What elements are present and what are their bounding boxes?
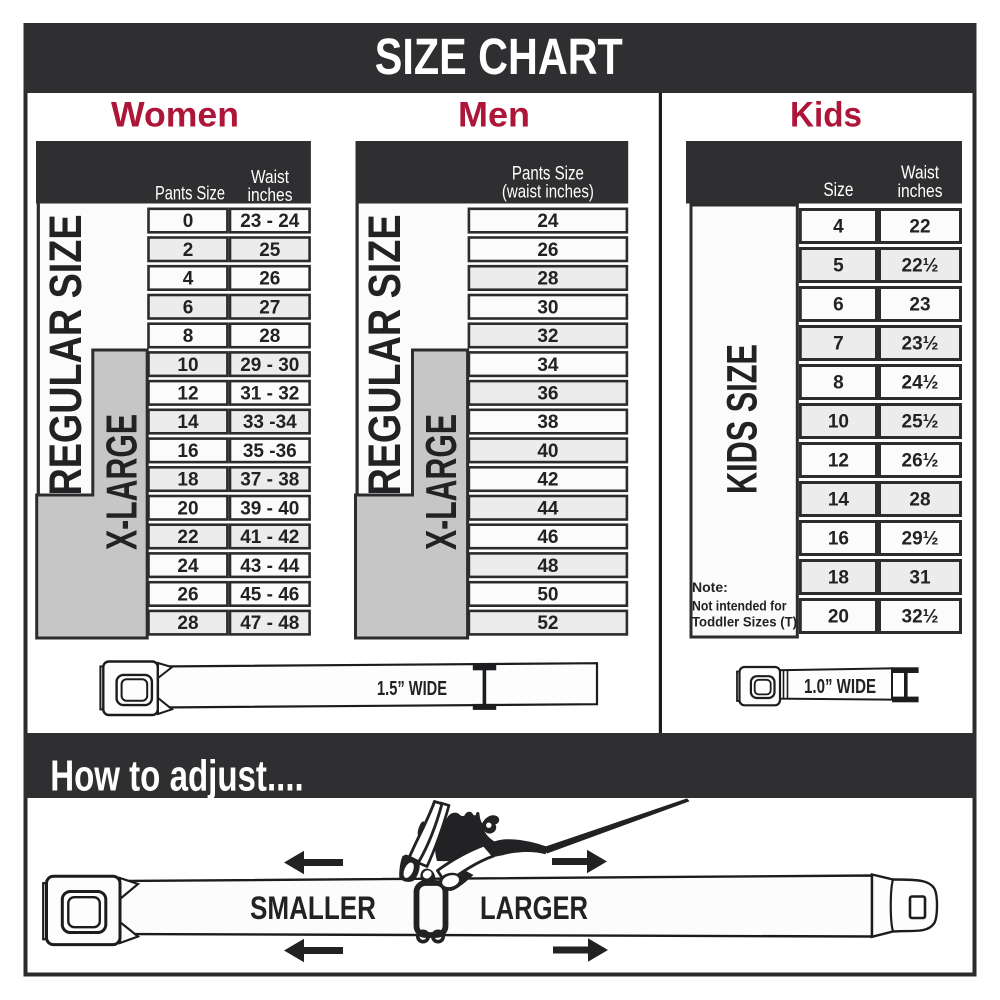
- svg-text:24½: 24½: [902, 373, 939, 394]
- svg-text:8: 8: [833, 373, 844, 394]
- svg-text:X-LARGE: X-LARGE: [417, 414, 466, 550]
- svg-text:35 -36: 35 -36: [243, 441, 297, 462]
- svg-text:10: 10: [828, 412, 849, 433]
- svg-text:48: 48: [537, 556, 558, 577]
- svg-text:26: 26: [537, 240, 558, 261]
- svg-text:KIDS SIZE: KIDS SIZE: [718, 344, 766, 494]
- svg-text:18: 18: [828, 568, 849, 589]
- svg-text:31 - 32: 31 - 32: [240, 383, 299, 404]
- svg-text:7: 7: [833, 334, 844, 355]
- svg-text:38: 38: [537, 412, 558, 433]
- svg-text:20: 20: [828, 607, 849, 628]
- svg-text:10: 10: [177, 355, 198, 376]
- svg-text:24: 24: [177, 556, 199, 577]
- svg-text:12: 12: [177, 383, 198, 404]
- svg-text:SIZE CHART: SIZE CHART: [375, 28, 623, 85]
- svg-text:45 - 46: 45 - 46: [240, 585, 299, 606]
- svg-text:14: 14: [828, 490, 850, 511]
- svg-text:LARGER: LARGER: [480, 890, 588, 926]
- svg-text:REGULAR SIZE: REGULAR SIZE: [359, 215, 410, 496]
- svg-text:32: 32: [537, 326, 558, 347]
- svg-text:23: 23: [909, 295, 930, 316]
- svg-text:33 -34: 33 -34: [243, 412, 297, 433]
- svg-text:Note:: Note:: [692, 579, 728, 595]
- svg-text:12: 12: [828, 451, 849, 472]
- svg-text:41 - 42: 41 - 42: [240, 527, 299, 548]
- svg-text:(waist inches): (waist inches): [502, 181, 594, 202]
- svg-text:44: 44: [537, 498, 559, 519]
- svg-text:REGULAR SIZE: REGULAR SIZE: [40, 215, 91, 496]
- svg-text:Men: Men: [458, 96, 530, 135]
- svg-text:16: 16: [177, 441, 198, 462]
- svg-text:43 - 44: 43 - 44: [240, 556, 300, 577]
- svg-text:22: 22: [909, 217, 930, 238]
- svg-text:0: 0: [183, 211, 194, 232]
- svg-text:26: 26: [259, 269, 280, 290]
- svg-text:1.0” WIDE: 1.0” WIDE: [804, 676, 876, 698]
- svg-text:22½: 22½: [902, 256, 939, 277]
- svg-text:28: 28: [177, 613, 198, 634]
- svg-text:28: 28: [259, 326, 280, 347]
- svg-text:34: 34: [537, 355, 559, 376]
- svg-text:27: 27: [259, 297, 280, 318]
- svg-text:26: 26: [177, 585, 198, 606]
- svg-text:Size: Size: [823, 179, 853, 201]
- svg-text:inches: inches: [898, 180, 943, 201]
- svg-text:36: 36: [537, 383, 558, 404]
- svg-text:31: 31: [909, 568, 931, 589]
- svg-text:32½: 32½: [902, 607, 939, 628]
- svg-text:Kids: Kids: [790, 96, 862, 135]
- svg-text:29½: 29½: [902, 529, 939, 550]
- svg-text:37 - 38: 37 - 38: [240, 470, 299, 491]
- svg-text:Women: Women: [111, 96, 239, 135]
- svg-text:How to adjust....: How to adjust....: [50, 751, 304, 800]
- svg-text:28: 28: [909, 490, 930, 511]
- svg-text:4: 4: [833, 217, 844, 238]
- svg-text:Toddler Sizes (T): Toddler Sizes (T): [692, 614, 797, 630]
- svg-text:20: 20: [177, 498, 198, 519]
- svg-text:SMALLER: SMALLER: [250, 890, 376, 926]
- svg-text:52: 52: [537, 613, 558, 634]
- svg-text:30: 30: [537, 297, 558, 318]
- svg-text:40: 40: [537, 441, 558, 462]
- svg-text:inches: inches: [248, 184, 293, 205]
- svg-text:1.5” WIDE: 1.5” WIDE: [377, 678, 447, 700]
- svg-text:2: 2: [183, 240, 194, 261]
- svg-text:26½: 26½: [902, 451, 939, 472]
- svg-text:Pants Size: Pants Size: [155, 183, 225, 205]
- svg-text:42: 42: [537, 470, 558, 491]
- svg-text:23½: 23½: [902, 334, 939, 355]
- svg-text:5: 5: [833, 256, 844, 277]
- svg-text:8: 8: [183, 326, 194, 347]
- svg-text:6: 6: [833, 295, 844, 316]
- svg-text:16: 16: [828, 529, 849, 550]
- svg-text:47 - 48: 47 - 48: [240, 613, 299, 634]
- svg-text:18: 18: [177, 470, 198, 491]
- svg-text:X-LARGE: X-LARGE: [98, 414, 147, 550]
- svg-text:22: 22: [177, 527, 198, 548]
- svg-text:50: 50: [537, 585, 558, 606]
- svg-text:46: 46: [537, 527, 558, 548]
- svg-text:4: 4: [183, 269, 194, 290]
- svg-text:6: 6: [183, 297, 194, 318]
- svg-text:29 - 30: 29 - 30: [240, 355, 299, 376]
- svg-text:25: 25: [259, 240, 281, 261]
- svg-text:23 - 24: 23 - 24: [240, 211, 300, 232]
- svg-text:39 - 40: 39 - 40: [240, 498, 299, 519]
- svg-text:24: 24: [537, 211, 559, 232]
- svg-text:25½: 25½: [902, 412, 939, 433]
- svg-text:Not intended for: Not intended for: [692, 598, 787, 614]
- svg-text:14: 14: [177, 412, 199, 433]
- svg-text:28: 28: [537, 269, 558, 290]
